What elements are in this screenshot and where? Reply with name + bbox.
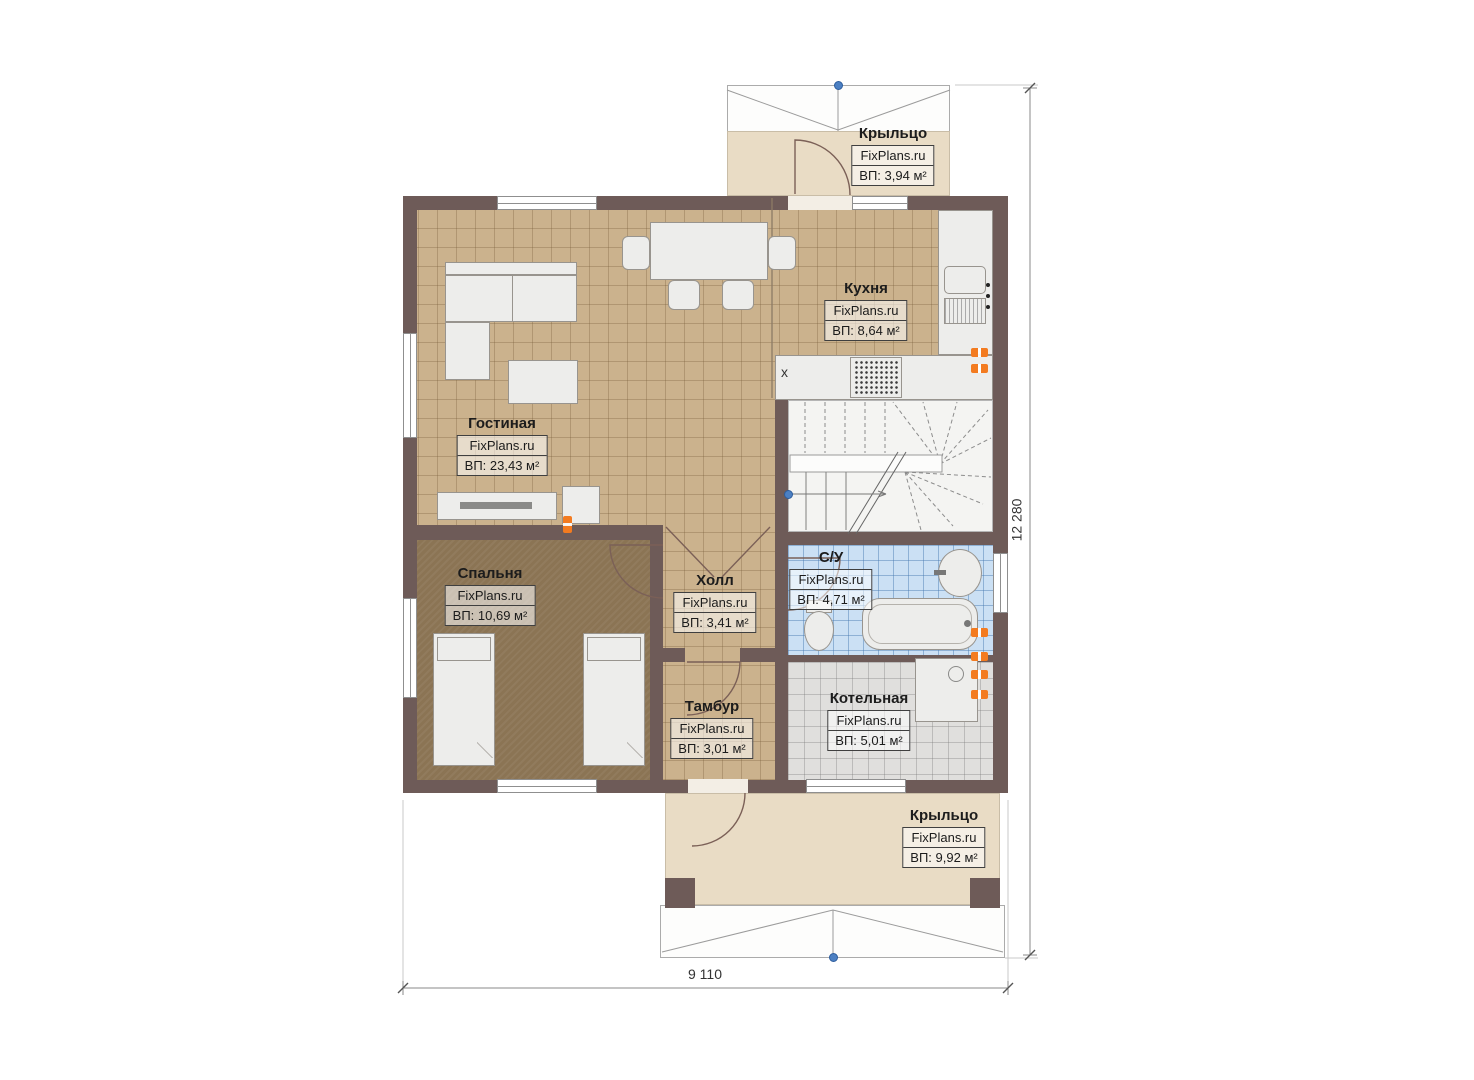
room-label-bedroom: Спальня FixPlans.ru ВП: 10,69 м² (445, 565, 536, 626)
blanket-fold-left (477, 742, 493, 758)
chair-bottom-1 (668, 280, 700, 310)
chair-left (622, 236, 650, 270)
area-text: ВП: 10,69 м² (446, 605, 535, 625)
window-top-living (497, 196, 597, 210)
room-name: Крыльцо (910, 807, 978, 824)
room-info-box: FixPlans.ru ВП: 3,94 м² (851, 145, 934, 186)
radiator-icon (971, 348, 988, 357)
room-info-box: FixPlans.ru ВП: 10,69 м² (445, 585, 536, 626)
radiator-icon (971, 652, 988, 661)
window-left-living (403, 333, 417, 438)
porch-post-left (665, 878, 695, 908)
brand-text: FixPlans.ru (446, 586, 535, 605)
radiator-icon (563, 516, 572, 533)
room-label-kitchen: Кухня FixPlans.ru ВП: 8,64 м² (824, 280, 907, 341)
area-text: ВП: 23,43 м² (458, 455, 547, 475)
dining-table (650, 222, 768, 280)
room-info-box: FixPlans.ru ВП: 3,41 м² (673, 592, 756, 633)
room-name: Котельная (830, 690, 909, 707)
room-name: С/У (819, 549, 843, 566)
room-info-box: FixPlans.ru ВП: 23,43 м² (457, 435, 548, 476)
room-label-porch-top: Крыльцо FixPlans.ru ВП: 3,94 м² (851, 125, 934, 186)
bottom-porch-roof (660, 905, 1005, 958)
radiator-icon (971, 690, 988, 699)
room-name: Кухня (844, 280, 888, 297)
room-label-porch-bottom: Крыльцо FixPlans.ru ВП: 9,92 м² (902, 807, 985, 868)
pillow-right (587, 637, 641, 661)
room-label-bathroom: С/У FixPlans.ru ВП: 4,71 м² (789, 549, 872, 610)
window-right-bathroom (993, 553, 1008, 613)
brand-text: FixPlans.ru (852, 146, 933, 165)
room-name: Холл (696, 572, 734, 589)
door-opening-porch (788, 196, 852, 210)
room-name: Тамбур (685, 698, 739, 715)
room-label-tambour: Тамбур FixPlans.ru ВП: 3,01 м² (670, 698, 753, 759)
area-text: ВП: 4,71 м² (790, 589, 871, 609)
room-name: Спальня (458, 565, 523, 582)
room-info-box: FixPlans.ru ВП: 4,71 м² (789, 569, 872, 610)
staircase-floor (788, 400, 993, 532)
room-info-box: FixPlans.ru ВП: 8,64 м² (824, 300, 907, 341)
sink-faucet (934, 570, 946, 575)
hall-tambour-opening (685, 648, 740, 662)
room-label-boiler: Котельная FixPlans.ru ВП: 5,01 м² (827, 690, 910, 751)
marker-dot-bottom (829, 953, 838, 962)
kitchen-sink-basin (944, 266, 986, 294)
boiler-dial (948, 666, 964, 682)
pillow-left (437, 637, 491, 661)
radiator-icon (971, 628, 988, 637)
kitchen-sink-drainboard (944, 298, 986, 324)
room-label-living: Гостиная FixPlans.ru ВП: 23,43 м² (457, 415, 548, 476)
brand-text: FixPlans.ru (790, 570, 871, 589)
brand-text: FixPlans.ru (674, 593, 755, 612)
room-info-box: FixPlans.ru ВП: 9,92 м² (902, 827, 985, 868)
door-opening-tambour-porch (688, 779, 748, 793)
radiator-icon (971, 364, 988, 373)
room-info-box: FixPlans.ru ВП: 3,01 м² (670, 718, 753, 759)
dimension-horizontal: 9 110 (688, 966, 722, 982)
window-bottom-bedroom (497, 779, 597, 793)
dimension-vertical: 12 280 (1008, 499, 1024, 542)
brand-text: FixPlans.ru (825, 301, 906, 320)
floor-plan: x Крыльцо FixPlans.ru ВП: 3,94 м² Кухня … (0, 0, 1474, 1080)
stove-burners (854, 360, 898, 394)
chair-bottom-2 (722, 280, 754, 310)
room-info-box: FixPlans.ru ВП: 5,01 м² (827, 710, 910, 751)
radiator-icon (971, 670, 988, 679)
window-left-bedroom (403, 598, 417, 698)
room-name: Крыльцо (859, 125, 927, 142)
brand-text: FixPlans.ru (828, 711, 909, 730)
marker-dot-stairs (784, 490, 793, 499)
room-label-hall: Холл FixPlans.ru ВП: 3,41 м² (673, 572, 756, 633)
sofa-chaise (445, 322, 490, 380)
kitchen-x-mark: x (781, 364, 788, 380)
brand-text: FixPlans.ru (458, 436, 547, 455)
area-text: ВП: 3,94 м² (852, 165, 933, 185)
window-bottom-boiler (806, 779, 906, 793)
boiler-unit (915, 658, 978, 722)
sink-knobs (986, 283, 990, 287)
blanket-fold-right (627, 742, 643, 758)
sofa-seat (445, 275, 577, 322)
brand-text: FixPlans.ru (903, 828, 984, 847)
area-text: ВП: 3,41 м² (674, 612, 755, 632)
chair-right (768, 236, 796, 270)
area-text: ВП: 5,01 м² (828, 730, 909, 750)
bathtub-faucet (964, 620, 971, 627)
porch-post-right (970, 878, 1000, 908)
tv (460, 502, 532, 509)
bathtub-inner (868, 604, 972, 644)
coffee-table (508, 360, 578, 404)
sofa-back (445, 262, 577, 275)
marker-dot-top (834, 81, 843, 90)
area-text: ВП: 8,64 м² (825, 320, 906, 340)
area-text: ВП: 3,01 м² (671, 738, 752, 758)
window-top-porch (852, 196, 908, 210)
room-name: Гостиная (468, 415, 536, 432)
brand-text: FixPlans.ru (671, 719, 752, 738)
area-text: ВП: 9,92 м² (903, 847, 984, 867)
